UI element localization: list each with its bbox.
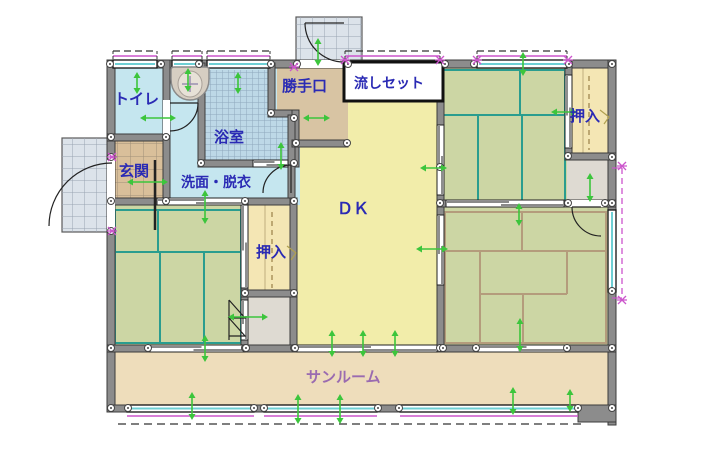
label-bathroom: 浴室 (214, 128, 244, 146)
room-tatami-bottomright-floor (440, 207, 616, 345)
wall-joint-dot (611, 63, 613, 65)
wall-joint-dot (475, 347, 477, 349)
wall-joint-dot (110, 200, 112, 202)
label-toilet: トイレ (114, 92, 159, 108)
label-sunroom: サンルーム (306, 369, 381, 386)
wall-joint-dot (611, 290, 613, 292)
wall-toilet-bottom (107, 134, 170, 141)
wall-joint-dot (293, 117, 295, 119)
wall-joint-dot (439, 202, 441, 204)
wall-joint-dot (110, 407, 112, 409)
handle-arrow-head[interactable] (337, 418, 344, 424)
wall-joint-dot (165, 200, 167, 202)
wall-joint-dot (577, 407, 579, 409)
magenta-marker (617, 296, 627, 304)
storage-middle-floor (245, 295, 294, 345)
door-opening (107, 160, 115, 230)
wall-oshiire-middle-right (290, 198, 297, 345)
wall-joint-dot (293, 292, 295, 294)
label-oshiire-middle: 押入 (256, 243, 286, 261)
sliding-opening (437, 125, 444, 195)
wall-joint-dot (200, 162, 202, 164)
wall-joint-dot (567, 202, 569, 204)
wall-joint-dot (567, 155, 569, 157)
label-sink-unit: 流しセット (354, 75, 424, 92)
floor-plan-canvas: トイレ 玄関 浴室 洗面・脱衣 勝手口 流しセット ＤＫ 押入 押入 サンルーム (0, 0, 705, 455)
sliding-opening (446, 200, 564, 207)
wall-joint-dot (244, 200, 246, 202)
wall-bath-right-top (268, 63, 275, 117)
wall-joint-dot (293, 200, 295, 202)
wall-joint-dot (398, 407, 400, 409)
wall-oshiire-middle-top (241, 198, 297, 205)
wall-joint-dot (263, 407, 265, 409)
wall-joint-dot (611, 347, 613, 349)
wall-joint-dot (293, 162, 295, 164)
wall-joint-dot (294, 347, 296, 349)
wall-joint-dot (198, 63, 200, 65)
wall-joint-dot (270, 112, 272, 114)
wall-joint-dot (604, 202, 606, 204)
wall-joint-dot (611, 407, 613, 409)
handle-arrow-head[interactable] (295, 418, 302, 424)
room-tatami-topright-floor (440, 63, 567, 203)
wall-joint-dot (245, 347, 247, 349)
handle-arrow-head[interactable] (520, 52, 527, 58)
wall-joint-dot (160, 63, 162, 65)
wall-joint-dot (270, 63, 272, 65)
wall-joint-dot (253, 407, 255, 409)
floor-plan-drawing: トイレ 玄関 浴室 洗面・脱衣 勝手口 流しセット ＤＫ 押入 押入 サンルーム (0, 0, 705, 455)
label-dk: ＤＫ (337, 201, 369, 218)
sliding-opening (150, 345, 245, 352)
wall-joint-dot (110, 136, 112, 138)
wall-joint-dot (109, 63, 111, 65)
wall-joint-dot (165, 136, 167, 138)
wall-storage-middle-top (241, 290, 297, 297)
wall-joint-dot (442, 347, 444, 349)
wall-left (107, 60, 115, 412)
wall-joint-dot (244, 292, 246, 294)
wall-joint-dot (377, 407, 379, 409)
wall-katteguchi-bottom (292, 140, 348, 147)
sliding-opening (297, 345, 437, 352)
label-washroom: 洗面・脱衣 (181, 174, 252, 191)
door-opening (568, 200, 604, 207)
wall-joint-dot (147, 347, 149, 349)
label-genkan: 玄関 (119, 162, 149, 180)
wall-genkan-right (163, 134, 170, 205)
wall-joint-dot (566, 347, 568, 349)
wall-joint-dot (110, 347, 112, 349)
wall-joint-dot (295, 142, 297, 144)
wall-joint-dot (611, 156, 613, 158)
genkan-porch-grid (62, 138, 108, 232)
wall-joint-dot (444, 63, 446, 65)
label-katteguchi: 勝手口 (282, 77, 327, 95)
wall-joint-dot (568, 63, 570, 65)
label-oshiire-right: 押入 (570, 107, 600, 125)
handle-arrow-head[interactable] (189, 414, 196, 420)
sliding-opening (241, 300, 248, 340)
sliding-opening (241, 205, 248, 288)
wall-joint-dot (611, 202, 613, 204)
wall-joint-dot (346, 142, 348, 144)
room-tatami-bottomleft-floor (110, 205, 245, 345)
wall-joint-dot (127, 407, 129, 409)
